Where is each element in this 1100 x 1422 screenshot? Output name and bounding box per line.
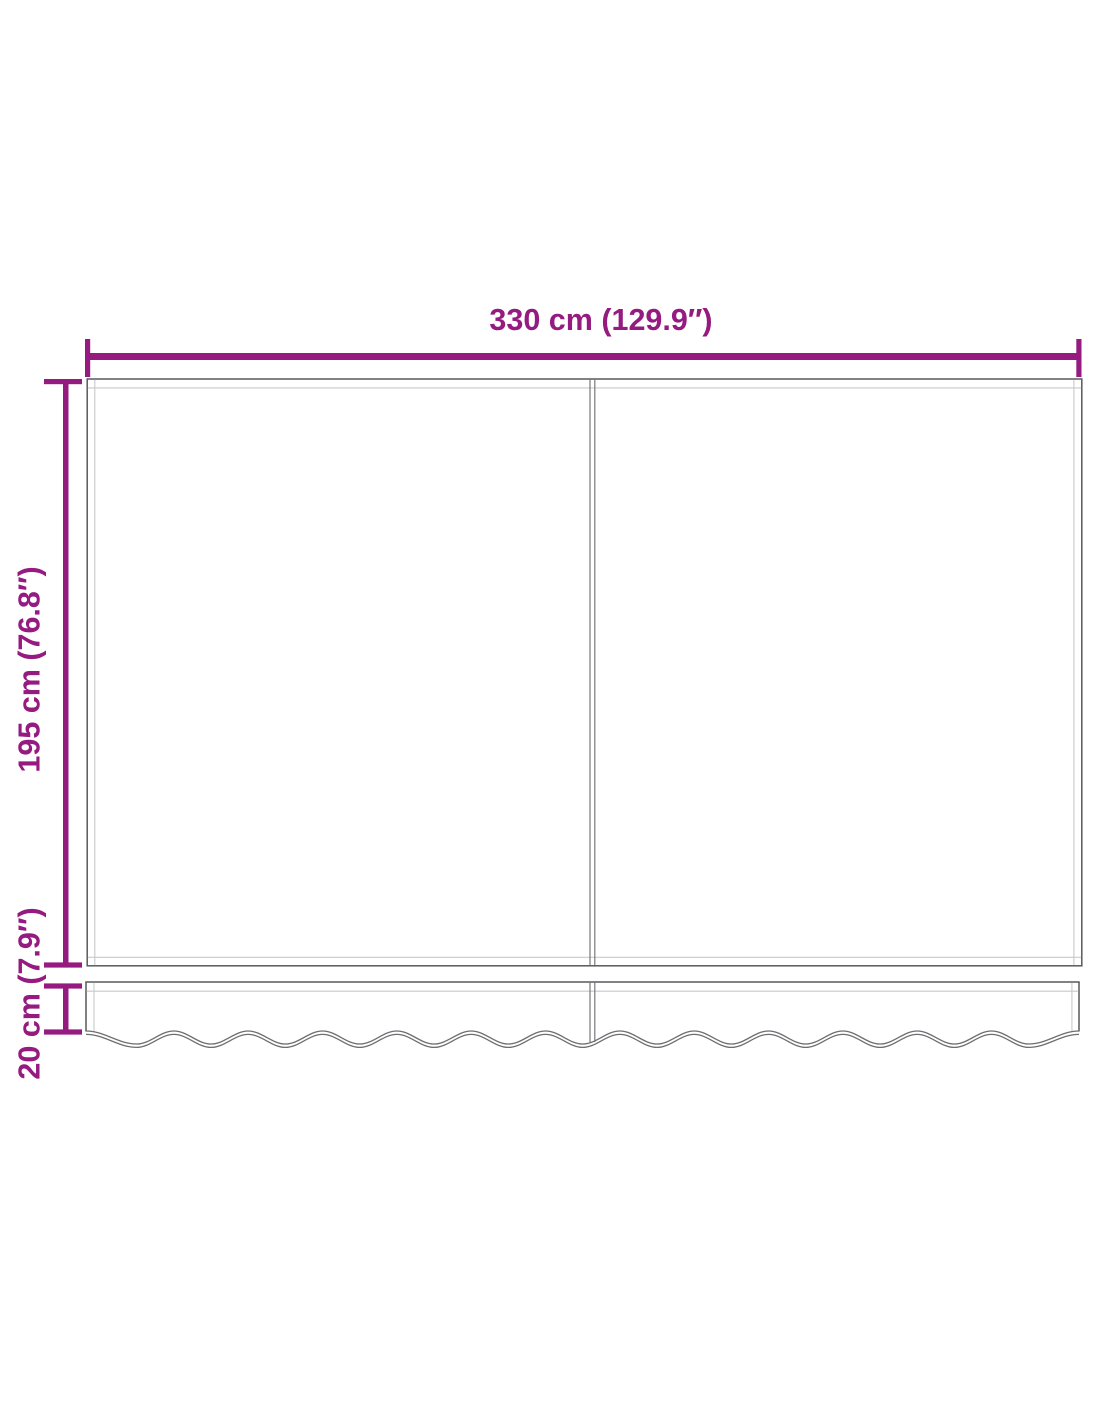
svg-text:20 cm (7.9″): 20 cm (7.9″) — [13, 907, 47, 1079]
svg-text:195 cm (76.8″): 195 cm (76.8″) — [13, 566, 47, 772]
svg-text:330 cm (129.9″): 330 cm (129.9″) — [489, 303, 712, 337]
